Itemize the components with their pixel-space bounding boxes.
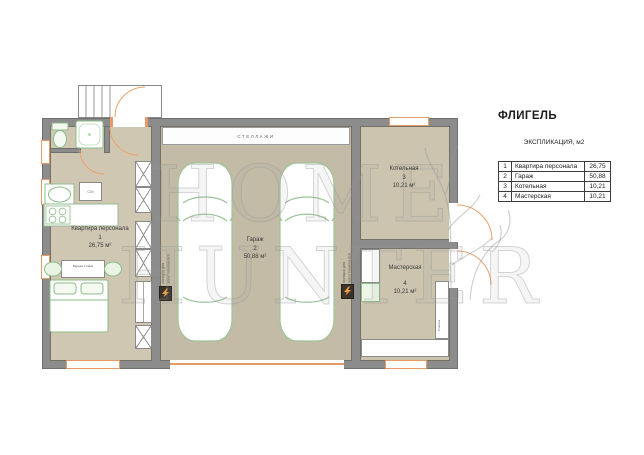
bathroom-wall-vertical [104, 126, 110, 153]
room-name: Мастерская [374, 264, 436, 273]
meter-label: Счетчик [437, 303, 446, 331]
washing-machine: СМ [79, 182, 102, 201]
boiler-door-opening [449, 203, 459, 242]
row-name: Котельная [512, 182, 585, 192]
room-name: Квартира персонала [68, 225, 132, 234]
garage-gate-opening [170, 360, 344, 369]
ev-charging-label: ЗАРЯДКА ДЛЯ ЭЛЕКТРОМОБИЛЕЙ [161, 234, 172, 284]
room-number: 1 [68, 234, 132, 243]
ev-charging-station-icon [341, 284, 354, 299]
room-area: 10,21 м² [374, 182, 434, 191]
room-number: 2 [228, 245, 282, 254]
shelving-label: СТЕЛЛАЖИ [237, 134, 274, 139]
row-number: 2 [499, 172, 512, 182]
storage-cabinet [135, 281, 152, 323]
floor-plan-sheet: СТЕЛЛАЖИ СМ Барная стойка Счетчик ЗАРЯДК… [0, 0, 644, 455]
row-number: 4 [499, 192, 512, 202]
room-label-garage: Гараж 2 50,88 м² [228, 236, 282, 262]
table-row: 2 Гараж 50,88 [499, 172, 611, 182]
explication-title: ЭКСПЛИКАЦИЯ, м2 [498, 139, 610, 146]
workshop-door-arc [457, 251, 491, 285]
room-area: 10,21 м² [374, 288, 436, 297]
wardrobe-cabinet [135, 161, 152, 187]
ev-charging-station-icon [159, 286, 172, 301]
room-number: 3 [374, 174, 434, 183]
row-name: Мастерская [512, 192, 585, 202]
room-label-workshop: Мастерская 4 10,21 м² [374, 264, 436, 297]
window [385, 360, 427, 369]
row-area: 50,88 [585, 172, 611, 182]
room-label-boiler: Котельная 3 10,21 м² [374, 165, 434, 191]
entrance-porch [78, 85, 162, 118]
row-name: Гараж [512, 172, 585, 182]
ev-charging-label: ЗАРЯДКА ДЛЯ ЭЛЕКТРОМОБИЛЕЙ [342, 233, 353, 283]
boiler-door-arc [457, 205, 492, 240]
table-row: 3 Котельная 10,21 [499, 182, 611, 192]
entrance-door-jamb [110, 117, 113, 127]
room-area: 26,75 м² [68, 242, 132, 251]
row-number: 3 [499, 182, 512, 192]
explication-table: 1 Квартира персонала 26,75 2 Гараж 50,88… [498, 161, 611, 202]
row-number: 1 [499, 162, 512, 172]
window [41, 179, 50, 205]
room-area: 50,88 м² [228, 253, 282, 262]
room-label-apartment: Квартира персонала 1 26,75 м² [68, 225, 132, 251]
wardrobe-cabinet [135, 187, 152, 213]
row-area: 10,21 [585, 192, 611, 202]
room-number: 4 [374, 280, 436, 289]
window [66, 360, 120, 369]
table-row: 1 Квартира персонала 26,75 [499, 162, 611, 172]
row-name: Квартира персонала [512, 162, 585, 172]
window [389, 117, 429, 126]
entrance-door-opening [110, 117, 148, 127]
wardrobe-cabinet [135, 249, 152, 277]
bar-counter-label: Барная стойка [70, 265, 96, 269]
workbench [361, 339, 449, 357]
wardrobe-cabinet [135, 325, 152, 349]
workshop-door-opening [449, 249, 459, 288]
fridge [96, 206, 115, 224]
window [41, 140, 50, 164]
washing-machine-label: СМ [80, 189, 101, 194]
bathroom-wall-horizontal [50, 148, 81, 153]
garage-gate-line [170, 363, 344, 365]
wardrobe-cabinet [135, 221, 152, 249]
bar-counter: Барная стойка [61, 260, 105, 278]
table-row: 4 Мастерская 10,21 [499, 192, 611, 202]
room-name: Гараж [228, 236, 282, 245]
room-name: Котельная [374, 165, 434, 174]
row-area: 10,21 [585, 182, 611, 192]
page-title: ФЛИГЕЛЬ [498, 110, 557, 122]
entrance-door-jamb [145, 117, 148, 127]
window [41, 255, 50, 279]
shelving-rack: СТЕЛЛАЖИ [162, 127, 350, 145]
row-area: 26,75 [585, 162, 611, 172]
